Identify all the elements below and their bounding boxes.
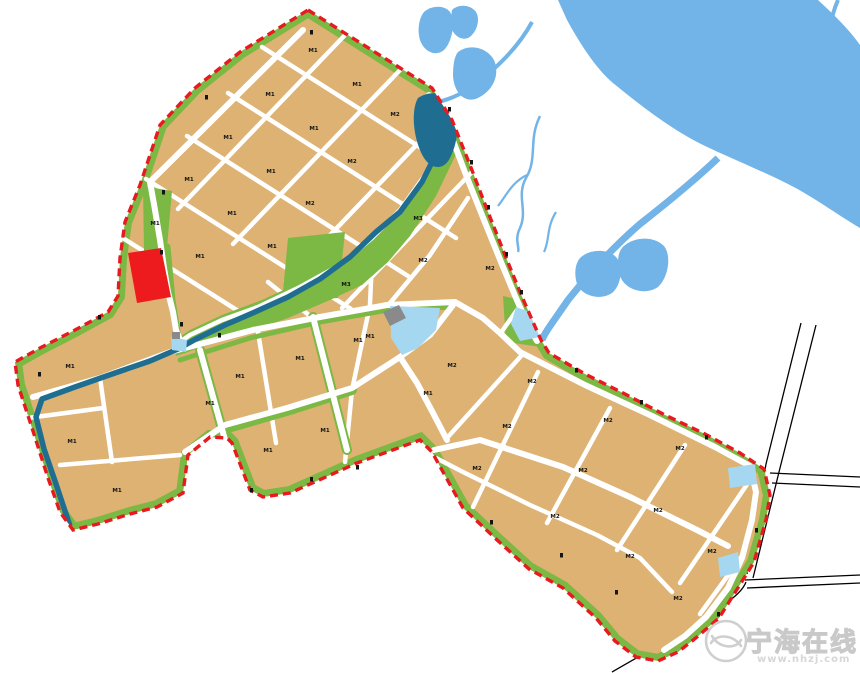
parcel-code-label: M1 xyxy=(309,126,318,132)
road-mark xyxy=(575,368,578,373)
parcel-code-label: M2 xyxy=(603,418,612,424)
road-mark xyxy=(717,612,720,617)
outside-road-vertical-b xyxy=(753,325,816,578)
road-mark xyxy=(205,95,208,100)
creek-1 xyxy=(517,116,540,252)
parcel-code-label: M1 xyxy=(150,221,159,227)
parcel-code-label: M2 xyxy=(653,508,662,514)
road-mark xyxy=(98,315,101,320)
parcel-code-label: M1 xyxy=(365,334,374,340)
parcel-code-label: M1 xyxy=(195,254,204,260)
watermark: 宁海在线 www.nhzj.com xyxy=(706,621,858,665)
road-mark xyxy=(560,553,563,558)
parcel-code-label: M1 xyxy=(65,364,74,370)
creek-3 xyxy=(544,212,556,252)
pond-top-1 xyxy=(419,7,453,53)
parcel-code-label: M1 xyxy=(227,211,236,217)
outside-road-east-b xyxy=(772,483,860,487)
parcel-code-label: M1 xyxy=(184,177,193,183)
watermark-site-url: www.nhzj.com xyxy=(757,654,850,665)
road-mark xyxy=(250,488,253,493)
parcel-code-label: M2 xyxy=(578,468,587,474)
watermark-logo-swoosh xyxy=(711,636,741,646)
sea-water xyxy=(558,0,860,228)
road-mark xyxy=(180,322,183,327)
parcel-code-label: M1 xyxy=(352,82,361,88)
road-mark xyxy=(160,250,163,255)
parcel-code-label: M1 xyxy=(267,244,276,250)
road-mark xyxy=(615,590,618,595)
road-mark xyxy=(505,252,508,257)
parcel-code-label: M1 xyxy=(266,169,275,175)
parcel-code-label: M2 xyxy=(673,596,682,602)
road-mark xyxy=(705,435,708,440)
parcel-code-label: M2 xyxy=(347,159,356,165)
road-mark xyxy=(470,160,473,165)
road-mark xyxy=(356,465,359,470)
road-mark xyxy=(755,528,758,533)
parcel-code-label: M1 xyxy=(295,356,304,362)
parcel-code-label: M1 xyxy=(223,135,232,141)
parcel-code-label: M3 xyxy=(341,282,350,288)
parcel-code-label: M2 xyxy=(550,514,559,520)
parcel-code-label: M1 xyxy=(308,48,317,54)
parcel-code-label: M2 xyxy=(485,266,494,272)
parcel-code-label: M2 xyxy=(472,466,481,472)
pond-top-2 xyxy=(450,6,478,39)
road-mark xyxy=(448,107,451,112)
parcel-code-label: M1 xyxy=(263,448,272,454)
parcel-code-label: M1 xyxy=(67,439,76,445)
parcel-code-label: M2 xyxy=(527,379,536,385)
outside-road-south-b xyxy=(747,583,860,588)
parcel-code-label: M2 xyxy=(707,549,716,555)
parcel-code-label: M2 xyxy=(418,258,427,264)
outside-road-east-a xyxy=(770,473,860,477)
road-mark xyxy=(520,290,523,295)
parcel-code-label: M2 xyxy=(502,424,511,430)
parcel-code-label: M1 xyxy=(112,488,121,494)
road-mark xyxy=(162,190,165,195)
parcel-code-label: M1 xyxy=(353,338,362,344)
parcel-code-label: M3 xyxy=(413,216,422,222)
parcel-code-label: M2 xyxy=(305,201,314,207)
map-canvas: M1M1M2M1M1M2M1M1M2M1M1M1M1M1M3M2M2M3M1M1… xyxy=(0,0,860,673)
parcel-code-label: M2 xyxy=(447,363,456,369)
parcel-code-label: M2 xyxy=(675,446,684,452)
road-mark xyxy=(218,333,221,338)
road-mark xyxy=(310,477,313,482)
road-mark xyxy=(640,400,643,405)
road-mark xyxy=(487,205,490,210)
small-structure xyxy=(172,332,180,339)
outside-road-south-a xyxy=(745,575,860,580)
road-mark xyxy=(310,30,313,35)
road-mark xyxy=(38,372,41,377)
parcel-code-label: M1 xyxy=(205,401,214,407)
pond-outside-1 xyxy=(575,251,620,297)
parcel-code-label: M2 xyxy=(625,554,634,560)
parcel-code-label: M2 xyxy=(390,112,399,118)
parcel-code-label: M1 xyxy=(423,391,432,397)
parcel-code-label: M1 xyxy=(265,92,274,98)
parcel-code-label: M1 xyxy=(235,374,244,380)
pond-outside-2 xyxy=(618,239,668,292)
road-mark xyxy=(490,520,493,525)
parcel-code-label: M1 xyxy=(320,428,329,434)
arm-pond-1 xyxy=(728,464,757,488)
planning-map: M1M1M2M1M1M2M1M1M2M1M1M1M1M1M3M2M2M3M1M1… xyxy=(0,0,860,673)
